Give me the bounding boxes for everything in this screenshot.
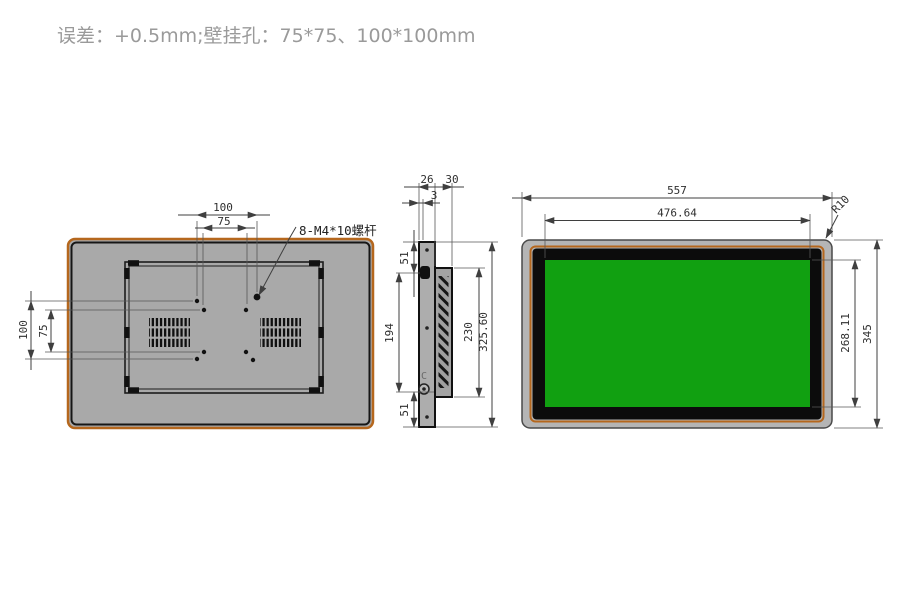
vent-grille-left [149,318,190,347]
front-view: 557 476.64 345 268.11 R10 [512,184,883,428]
page-title: 误差：+0.5mm;壁挂孔：75*75、100*100mm [57,25,475,47]
rear-panel-outline [68,239,373,428]
dim-side-51-top: 51 [398,251,411,264]
dim-front-557: 557 [667,184,687,197]
dim-side-3: 3 [431,189,438,202]
dim-rear-left-75: 75 [37,324,50,337]
vent-grille-right [260,318,301,347]
dim-rear-top-100: 100 [213,201,233,214]
dim-side-194: 194 [383,323,396,343]
screw-label: 8-M4*10螺杆 [299,223,377,238]
dim-front-r10: R10 [829,193,852,216]
dim-front-476: 476.64 [657,207,697,220]
dim-front-345: 345 [861,324,874,344]
rear-view: 8-M4*10螺杆 100 75 100 75 [17,201,377,428]
side-marker-c: C [421,371,427,382]
vesa100-hole [195,357,199,361]
dim-rear-top-75: 75 [217,215,230,228]
vesa75-hole [244,350,248,354]
dim-front-268: 268.11 [839,313,852,353]
side-vent-hatch [439,276,449,388]
vesa75-hole [244,308,248,312]
dim-side-325: 325.60 [477,312,490,352]
dim-side-230: 230 [462,322,475,342]
side-view: C [383,173,498,427]
vesa100-hole [195,299,199,303]
technical-drawing: 误差：+0.5mm;壁挂孔：75*75、100*100mm [0,0,900,600]
side-screw-boss-center [422,387,426,391]
side-bracket-block [420,266,430,279]
vesa75-hole [202,350,206,354]
dim-side-30: 30 [445,173,458,186]
screen-active-area [545,260,810,407]
dim-side-51-bottom: 51 [398,403,411,416]
vesa100-hole [251,358,255,362]
vesa75-hole [202,308,206,312]
dim-side-26: 26 [420,173,433,186]
dim-rear-left-100: 100 [17,320,30,340]
